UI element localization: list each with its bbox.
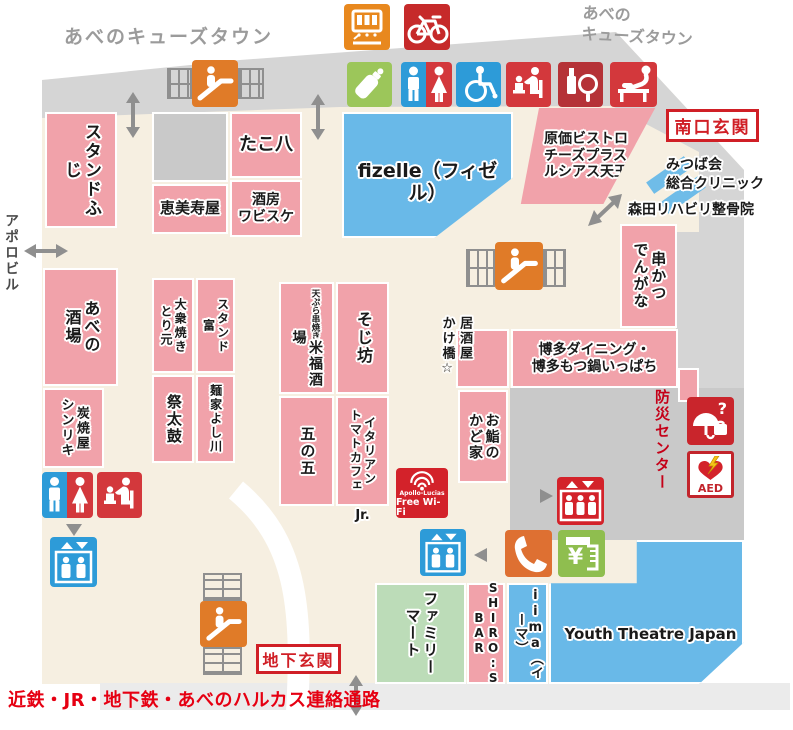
escalator-icon [495, 242, 543, 290]
south-entrance-label: 南口玄関 [666, 109, 759, 142]
stairs-grid [543, 249, 566, 287]
vending-machine-icon [344, 4, 390, 50]
shop-yonefuku-main: 米福酒場 [291, 330, 324, 388]
stairs-grid [238, 68, 264, 99]
shop-taishu-yakitori-motoi: 大衆焼き とり元 [152, 278, 194, 373]
shop-iima-label: iima（イーマ） [512, 585, 543, 682]
question-symbol: ? [718, 399, 727, 418]
restroom-female-icon [426, 62, 452, 107]
restroom-male-icon [401, 62, 426, 107]
shop-stand-tomi: スタンド 富 [196, 278, 235, 373]
shop-ebisuya: 恵美寿屋 [152, 184, 228, 234]
apollo-building-label: アポロビル [1, 213, 21, 323]
restroom-icon [42, 472, 93, 518]
elevator-icon [50, 537, 97, 587]
right-corridor [676, 232, 744, 388]
corridor-note: 近鉄・JR・地下鉄・あべのハルカス連絡通路 [8, 686, 381, 712]
nursery-bottle-icon [347, 62, 392, 107]
shop-kushikatsu-dengana: 串かつ でんがな [620, 224, 677, 328]
shop-shiros-bar: SHIRO:S BAR [467, 583, 505, 684]
floor-map: あべのキューズタウン あべの キューズタウン アポロビル スタンドふじ たこ八 … [0, 0, 793, 730]
shop-stand-fuji: スタンドふじ [45, 112, 117, 228]
shop-yonefuku-sakaba: 天ぷら串焼き米福酒場 [279, 282, 334, 394]
elevator-icon [420, 529, 466, 576]
free-wifi-icon: Apollo-Lucias Free Wi-Fi [396, 468, 448, 518]
shop-abeno-sakaba: あべの 酒場 [43, 268, 118, 386]
shop-yonefuku-label: 天ぷら串焼き米福酒場 [290, 284, 323, 392]
shop-hakata-ippachi: 博多ダイニング・ 博多もつ鍋いっぱち [511, 329, 678, 388]
aed-label: AED [698, 483, 723, 494]
shop-family-mart: ファミリー マート [375, 583, 466, 684]
shop-takohachi: たこ八 [230, 112, 302, 178]
atm-icon: ¥ [558, 530, 605, 577]
basement-entrance-label: 地下玄関 [256, 644, 341, 674]
escalator-icon [192, 60, 238, 107]
area-title-top-right: あべの キューズタウン [581, 3, 694, 50]
wifi-label: Free Wi-Fi [396, 498, 448, 518]
shop-matsuri-daiko: 祭太鼓 [152, 375, 194, 463]
escalator-icon [200, 601, 247, 647]
shop-go-no-go: 五の五 [279, 396, 334, 506]
shop-shiros-bar-label: SHIRO:S BAR [472, 581, 500, 686]
nursing-room-icon [97, 472, 142, 518]
stairs-grid [203, 573, 242, 601]
nursing-room-icon [506, 62, 551, 107]
shop-italian-tomato-cafe: イタリアン トマトカフェ [336, 396, 389, 506]
lost-and-found-icon: ? [687, 397, 734, 445]
powder-room-icon [558, 62, 603, 107]
shop-italian-tomato-cafe-jr: Jr. [333, 507, 392, 525]
stairs-grid [203, 647, 242, 675]
elevator-icon [557, 477, 604, 525]
shop-shubo-wabisuke: 酒房 ワビスケ [230, 180, 302, 237]
area-title-top-left: あべのキューズタウン [64, 22, 273, 49]
shop-iima: iima（イーマ） [507, 583, 548, 684]
restroom-female-icon [67, 472, 93, 518]
disaster-center-label: 防災センター [652, 389, 673, 501]
unlabeled-area [152, 112, 228, 182]
phone-icon [505, 530, 552, 577]
restroom-male-icon [42, 472, 67, 518]
stairs-grid [167, 68, 192, 99]
shop-sumiyakiya-shinriki: 炭焼屋 シンリキ [43, 388, 104, 468]
shop-menya-yoshikawa: 麺家よし川 [196, 375, 235, 463]
stairs-grid [466, 249, 495, 287]
shop-yonefuku-sub: 天ぷら串焼き [310, 289, 320, 340]
restroom-icon [401, 62, 452, 107]
clinic-mitsuba-label: みつば会 総合クリニック [666, 156, 793, 194]
wheelchair-access-icon [456, 62, 501, 107]
shop-sojibo: そじ坊 [336, 282, 389, 394]
baby-changing-icon [610, 62, 657, 107]
shop-izakaya-kakehashi-label: 居酒屋 かけ橋☆ [438, 316, 473, 408]
bicycle-parking-icon [404, 4, 450, 50]
yen-symbol: ¥ [568, 545, 583, 570]
clinic-morita-label: 森田リハビリ整骨院 [628, 201, 793, 220]
aed-icon: AED [687, 451, 734, 498]
